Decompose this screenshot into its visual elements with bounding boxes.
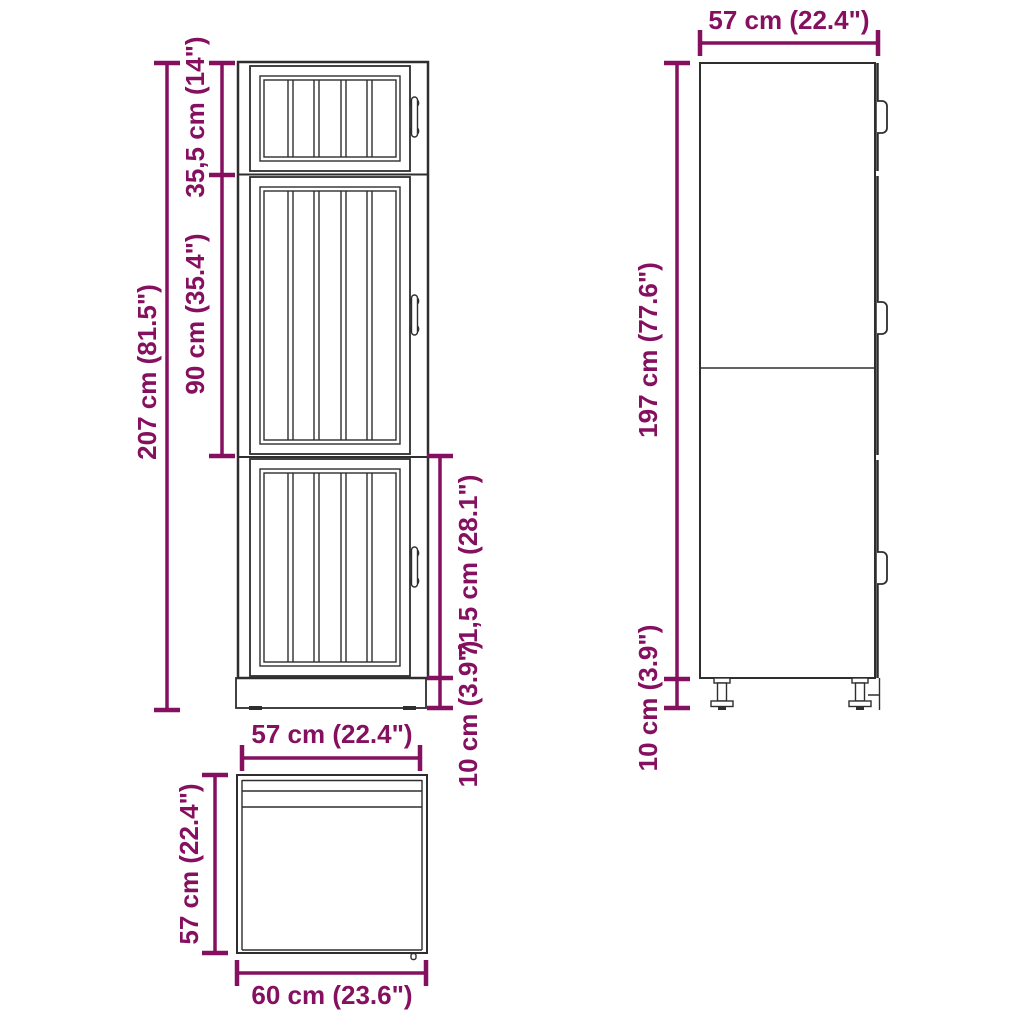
dim-label-front-middle-section: 90 cm (35.4") [180,233,210,394]
dim-top-width: 60 cm (23.6") [237,960,426,1010]
front-door-bottom [250,459,419,676]
side-handle-top-icon [877,101,887,133]
foot-mark-left [249,706,262,710]
cabinet-dimensions-diagram: 207 cm (81.5") 35,5 cm (14") 90 cm (35.4… [0,0,1024,1024]
foot-base [849,701,871,707]
dim-label-front-total-height: 207 cm (81.5") [132,284,162,460]
plinth-board [236,678,426,708]
side-view: 57 cm (22.4") 197 cm (77.6") 10 cm (3.9"… [633,5,887,771]
dim-label-side-body-height: 197 cm (77.6") [633,262,663,438]
dim-front-bottom-plinth: 71,5 cm (28.1") 10 cm (3.9") [427,456,483,787]
top-handle-icon [411,954,416,960]
dim-label-top-depth: 57 cm (22.4") [251,719,412,749]
dim-label-top-side-depth: 57 cm (22.4") [174,783,204,944]
front-door-middle [250,177,419,454]
side-handle-middle-icon [877,302,887,334]
handle-bar [412,295,418,335]
dim-top-side-depth: 57 cm (22.4") [174,775,228,953]
top-view: 57 cm (22.4") 57 cm (22.4") 60 cm (23.6"… [174,719,427,1010]
dim-side-heights: 197 cm (77.6") 10 cm (3.9") [633,63,690,771]
door-handle-icon [410,547,418,587]
top-side-lines [242,780,422,950]
front-view: 207 cm (81.5") 35,5 cm (14") 90 cm (35.4… [132,36,483,787]
dim-label-front-top-section: 35,5 cm (14") [180,36,210,197]
foot-pad [718,707,726,711]
door-panel [250,66,410,171]
dim-label-front-plinth-height: 10 cm (3.9") [453,641,483,788]
dim-top-depth: 57 cm (22.4") [242,719,420,771]
handle-bar [412,97,418,137]
dim-front-total-height: 207 cm (81.5") [132,63,180,710]
door-handle-icon [410,97,418,137]
adjustable-foot-right [849,678,871,710]
plinth-front [236,678,426,710]
foot-stem [718,683,727,701]
dim-label-top-width: 60 cm (23.6") [251,980,412,1010]
dim-label-side-depth: 57 cm (22.4") [708,5,869,35]
handle-bar [412,547,418,587]
foot-mark-right [403,706,416,710]
foot-plate [714,678,730,683]
diagram-canvas: 207 cm (81.5") 35,5 cm (14") 90 cm (35.4… [0,0,1024,1024]
cabinet-side-body [700,63,875,678]
dim-label-side-plinth-height: 10 cm (3.9") [633,625,663,772]
front-door-top [250,66,419,171]
dim-label-front-bottom-section: 71,5 cm (28.1") [453,475,483,658]
foot-base [711,701,733,707]
dim-side-depth: 57 cm (22.4") [700,5,878,56]
foot-pad [856,707,864,711]
door-panel [250,177,410,454]
door-panel [250,459,410,676]
foot-stem [856,683,865,701]
adjustable-foot-left [711,678,733,710]
top-panel-lines [242,781,422,951]
foot-plate [852,678,868,683]
side-handle-bottom-icon [877,552,887,584]
dim-front-sections: 35,5 cm (14") 90 cm (35.4") [180,36,235,456]
cabinet-top-body [237,775,427,953]
door-handle-icon [410,295,418,335]
